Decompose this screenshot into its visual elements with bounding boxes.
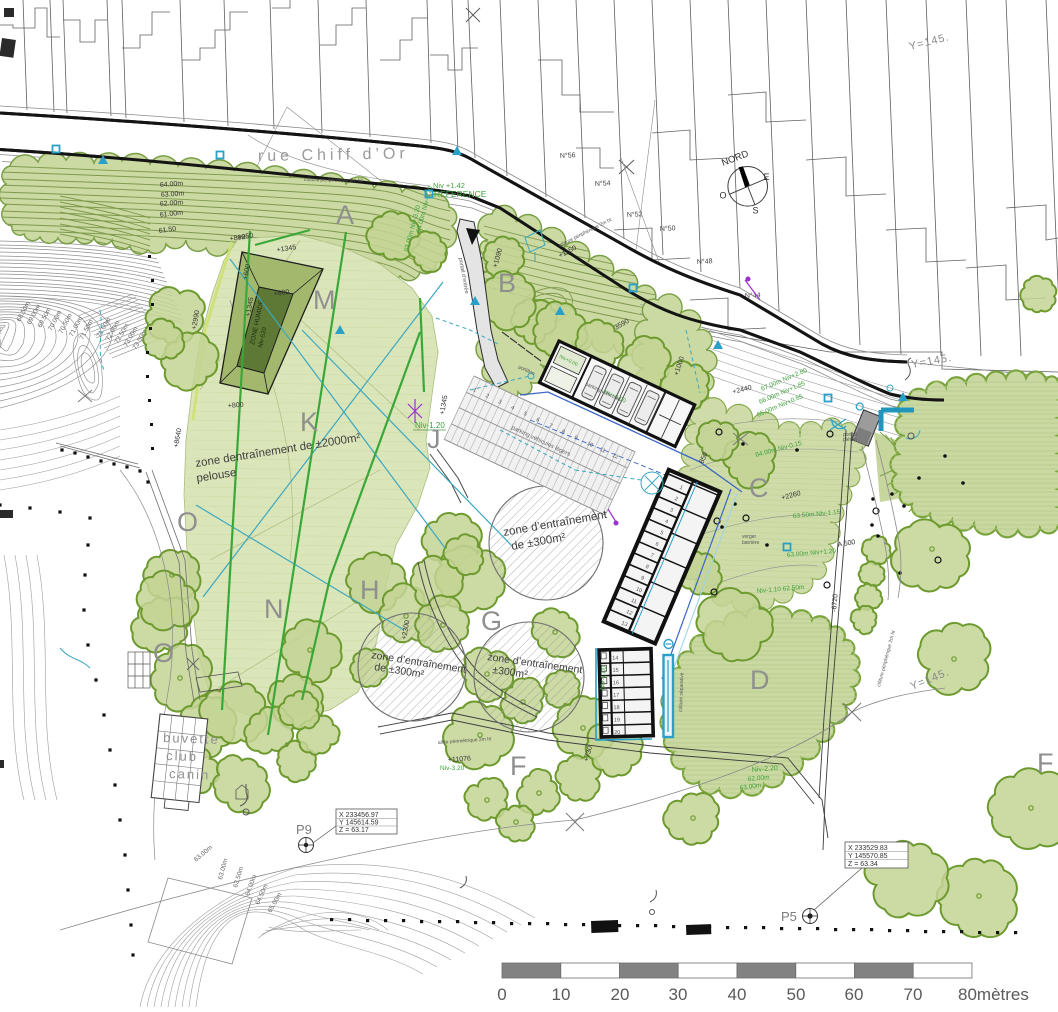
- svg-text:16: 16: [613, 680, 619, 686]
- svg-text:+800: +800: [228, 402, 244, 410]
- svg-text:10: 10: [552, 985, 571, 1004]
- svg-text:50: 50: [787, 985, 806, 1004]
- svg-text:20: 20: [614, 730, 620, 736]
- svg-text:15: 15: [612, 668, 618, 674]
- svg-text:D: D: [750, 665, 770, 695]
- svg-text:REFERENCE: REFERENCE: [434, 189, 487, 199]
- svg-text:club: club: [166, 748, 198, 764]
- svg-text:60: 60: [845, 985, 864, 1004]
- svg-text:14: 14: [612, 655, 618, 661]
- svg-text:S: S: [753, 206, 759, 216]
- svg-text:40: 40: [728, 985, 747, 1004]
- svg-text:Y 145614.59: Y 145614.59: [339, 820, 379, 827]
- svg-text:F: F: [510, 751, 527, 781]
- svg-text:18: 18: [613, 705, 619, 711]
- svg-text:barrière: barrière: [742, 540, 759, 546]
- svg-text:Z = 63.34: Z = 63.34: [848, 861, 878, 868]
- svg-text:J: J: [427, 424, 441, 454]
- svg-text:B: B: [498, 268, 516, 298]
- svg-text:N°48: N°48: [697, 257, 713, 266]
- svg-text:N°50: N°50: [660, 224, 676, 233]
- svg-text:0: 0: [497, 985, 506, 1004]
- svg-text:19: 19: [614, 717, 620, 723]
- svg-text:30: 30: [669, 985, 688, 1004]
- svg-text:rue Chiff d’Or: rue Chiff d’Or: [258, 145, 409, 165]
- svg-text:K: K: [300, 407, 318, 437]
- svg-text:X 233529.83: X 233529.83: [848, 845, 888, 852]
- svg-text:P5: P5: [781, 909, 797, 924]
- svg-text:canin: canin: [169, 766, 211, 782]
- svg-text:H: H: [360, 575, 380, 605]
- svg-text:N°54: N°54: [595, 179, 611, 188]
- svg-text:Z = 63.17: Z = 63.17: [339, 827, 369, 834]
- svg-text:X 233456.97: X 233456.97: [339, 812, 379, 819]
- svg-text:O: O: [177, 507, 198, 537]
- svg-text:P9: P9: [296, 822, 312, 837]
- svg-text:O: O: [153, 638, 174, 668]
- svg-text:E: E: [764, 172, 770, 182]
- svg-text:C: C: [749, 473, 769, 503]
- svg-text:N°56: N°56: [560, 151, 576, 160]
- svg-text:M: M: [313, 285, 336, 315]
- svg-text:buvette: buvette: [163, 730, 220, 747]
- svg-text:80mètres: 80mètres: [958, 985, 1029, 1004]
- svg-text:A: A: [336, 200, 354, 230]
- svg-text:70: 70: [904, 985, 923, 1004]
- svg-text:clôture périphérique 2m ht: clôture périphérique 2m ht: [304, 177, 363, 184]
- svg-text:N: N: [264, 594, 284, 624]
- svg-text:G: G: [481, 606, 502, 636]
- svg-text:20: 20: [611, 985, 630, 1004]
- svg-text:Niv-3.20: Niv-3.20: [440, 765, 465, 772]
- svg-text:F: F: [1037, 748, 1054, 778]
- svg-text:Y 145570.85: Y 145570.85: [848, 853, 888, 860]
- svg-text:17: 17: [613, 693, 619, 699]
- svg-text:O: O: [720, 191, 727, 201]
